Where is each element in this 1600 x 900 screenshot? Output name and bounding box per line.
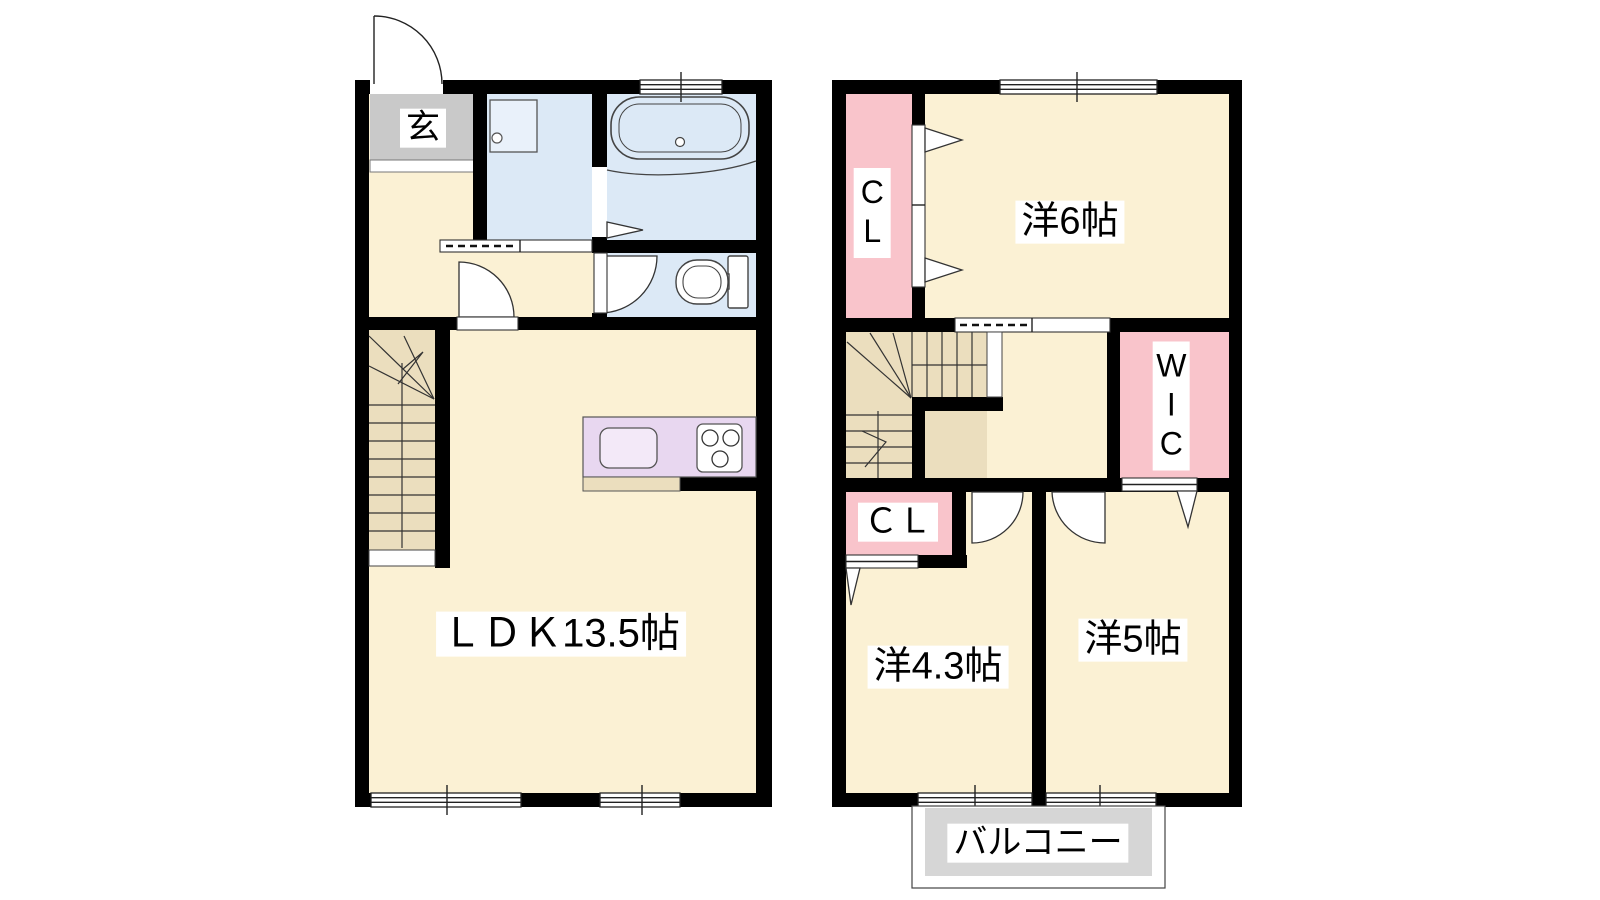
f1-wall: [473, 94, 487, 240]
f1-entrance-opening: [370, 80, 443, 94]
f1-wall: [607, 240, 756, 253]
ldk-door-leaf: [457, 317, 518, 330]
f2-stair-landing: [987, 332, 1002, 397]
washbasin-icon: [490, 100, 537, 152]
label-wic: WIC: [1153, 342, 1190, 471]
f1-wall: [369, 317, 457, 330]
label-balcony: バルコニー: [947, 824, 1128, 863]
f2-wall: [912, 94, 925, 127]
label-closet-lower: ＣＬ: [858, 503, 938, 542]
f2-wall: [912, 397, 1003, 411]
stove-icon: [697, 424, 742, 472]
kitchen-sink: [600, 428, 657, 468]
label-bedroom5: 洋5帖: [1078, 619, 1187, 662]
floorplan: 玄 ＬＤＫ13.5帖 洋6帖 CL WIC ＣＬ 洋4.3帖 洋5帖 バルコニー: [0, 0, 1600, 900]
label-entrance: 玄: [400, 109, 446, 148]
bedroom6-sliding-door: [955, 318, 1110, 332]
f2-wall: [1107, 332, 1120, 478]
f2-wall: [918, 555, 967, 568]
toilet-icon: [676, 256, 748, 308]
f1-wall: [435, 330, 450, 568]
f1-wall: [592, 94, 607, 167]
f1-wall: [680, 477, 756, 491]
floorplan-drawing: [0, 0, 1600, 900]
entry-door-swing: [374, 16, 442, 84]
f1-wall: [592, 237, 607, 253]
label-bedroom6: 洋6帖: [1015, 201, 1124, 244]
f1-entrance-step: [370, 160, 476, 172]
f2-wall: [912, 411, 925, 478]
washroom-sliding-door: [440, 240, 592, 252]
floor2-plan: [832, 72, 1242, 888]
f1-stair-landing: [369, 550, 435, 566]
bathroom-door-opening: [592, 167, 607, 237]
toilet-door-leaf: [594, 253, 607, 313]
label-bedroom43: 洋4.3帖: [868, 646, 1009, 689]
f2-wall: [912, 287, 925, 318]
kitchen-counter-base: [583, 477, 680, 491]
label-closet-upper: CL: [854, 168, 891, 258]
f2-wall: [1032, 492, 1046, 793]
label-ldk: ＬＤＫ13.5帖: [436, 612, 686, 657]
f1-wall: [518, 317, 756, 330]
